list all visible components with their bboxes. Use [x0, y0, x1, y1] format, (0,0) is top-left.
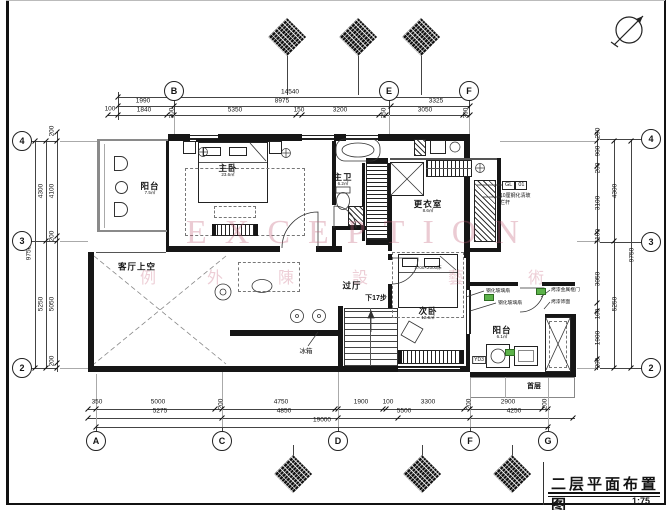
- axis-bubble-E: E: [379, 81, 399, 101]
- annotation: 首层: [527, 381, 541, 391]
- dimension-label: 150: [294, 107, 305, 114]
- axis-bubble-F: F: [460, 431, 480, 451]
- dimension-label: 5250: [38, 297, 45, 311]
- dimension-label: 4300: [612, 184, 619, 198]
- fridge-symbol: [291, 310, 304, 323]
- dimension-label: 3200: [333, 107, 347, 114]
- room-area: 6.1㎡: [492, 335, 511, 340]
- glass-callout-code: GL: [502, 181, 515, 190]
- bed-fold: [440, 256, 456, 270]
- dimension-label: 5500: [397, 408, 411, 415]
- dimension-label: 1840: [137, 107, 151, 114]
- glass-callout-desc: 栏杆: [500, 199, 510, 206]
- dimension-label: 5250: [612, 297, 619, 311]
- room-name: 过厅: [342, 281, 361, 290]
- north-compass: [611, 16, 643, 47]
- dimension-label: 8975: [275, 98, 289, 105]
- axis-bubble-2: 2: [12, 358, 32, 378]
- room-label: 过厅: [342, 281, 361, 290]
- room-label: 次卧12.6㎡: [418, 307, 437, 321]
- dimension-label: 1100: [595, 229, 602, 243]
- dimension-label: 3325: [429, 98, 443, 105]
- door-arc: [392, 258, 418, 284]
- dimension-label: 5350: [228, 107, 242, 114]
- drawing-title: 二层平面布置图: [551, 473, 670, 510]
- dimension-label: 3100: [595, 196, 602, 210]
- dimension-label: 100: [383, 399, 394, 406]
- axis-bubble-3: 3: [12, 231, 32, 251]
- material-callout: 烤漆饰面: [551, 298, 570, 305]
- dimension-label: 5050: [49, 297, 56, 311]
- dimension-label: 4750: [274, 399, 288, 406]
- dimension-label: 200: [595, 358, 602, 369]
- glass-callout-box: GL01: [502, 181, 527, 190]
- dimension-label: 200: [595, 128, 602, 139]
- glass-callout-desc: 10厘钢化清玻: [500, 192, 531, 199]
- room-label: 阳台7.5㎡: [140, 182, 159, 196]
- material-callout: 钢化玻璃扇: [498, 299, 522, 306]
- axis-bubble-F: F: [459, 81, 479, 101]
- dimension-label: 19000: [313, 417, 331, 424]
- room-area: 6.2㎡: [333, 182, 352, 187]
- dimension-label: 300: [169, 108, 176, 119]
- dimension-label: 4300: [38, 184, 45, 198]
- dimension-label: 5000: [151, 399, 165, 406]
- dimension-label: 4250: [507, 408, 521, 415]
- round-table: [215, 284, 231, 300]
- room-area: 7.5㎡: [140, 191, 159, 196]
- axis-bubble-2: 2: [641, 358, 661, 378]
- dimension-label: 350: [92, 399, 103, 406]
- desk-chair: [252, 280, 272, 293]
- dimension-label: 200: [595, 163, 602, 174]
- floor-plan-sheet: GL01 10厘钢化清玻 栏杆 钢化玻璃扇 钢化玻璃扇 烤漆金属框门 烤漆饰面 …: [0, 0, 670, 510]
- corner-chair: [401, 321, 423, 343]
- material-callout: 钢化玻璃扇: [486, 287, 510, 294]
- dimension-label: 3050: [418, 107, 432, 114]
- axis-bubble-4: 4: [12, 131, 32, 151]
- ceiling-fan-symbols: [199, 142, 485, 173]
- dimension-label: 200: [49, 126, 56, 137]
- room-area: 23.6㎡: [218, 173, 237, 178]
- material-callout: 烤漆金属框门: [551, 286, 580, 293]
- room-area: 12.6㎡: [418, 316, 437, 321]
- room-label: 主卫6.2㎡: [333, 173, 352, 187]
- dimension-label: 200: [49, 356, 56, 367]
- dimension-label: 200: [49, 231, 56, 242]
- dimension-label: 100: [105, 106, 116, 113]
- axis-bubble-A: A: [86, 431, 106, 451]
- room-label: 更衣室8.6㎡: [414, 200, 443, 214]
- drawing-scale: 1:75: [632, 496, 650, 506]
- equipment-tag: [505, 349, 515, 356]
- fridge-symbol: [313, 310, 326, 323]
- room-name: 客厅上空: [118, 262, 156, 271]
- annotation: 下17步: [365, 293, 387, 303]
- equipment-tag: [484, 294, 494, 301]
- dimension-label: 1900: [354, 399, 368, 406]
- door-arc: [282, 212, 318, 248]
- dimension-label: 100: [595, 309, 602, 320]
- dimension-label: 14540: [281, 89, 299, 96]
- dimension-label: 200: [466, 399, 473, 410]
- room-label: 阳台6.1㎡: [492, 326, 511, 340]
- dimension-label: 200: [218, 399, 225, 410]
- dimension-label: 900: [595, 146, 602, 157]
- dimension-label: 4850: [277, 408, 291, 415]
- dimension-label: 2900: [501, 399, 515, 406]
- bathtub: [336, 139, 380, 161]
- axis-bubble-B: B: [164, 81, 184, 101]
- dimension-label: 300: [463, 108, 470, 119]
- dimension-label: 3050: [595, 272, 602, 286]
- stair-arrow: [368, 311, 374, 332]
- dimension-label: 5275: [153, 408, 167, 415]
- axis-bubble-3: 3: [641, 232, 661, 252]
- dimension-label: 1900: [595, 331, 602, 345]
- room-area: 8.6㎡: [414, 209, 443, 214]
- dimension-label: 9750: [629, 248, 636, 262]
- washer-drum: [491, 349, 505, 363]
- toilet: [337, 193, 350, 210]
- axis-bubble-D: D: [328, 431, 348, 451]
- axis-bubble-G: G: [538, 431, 558, 451]
- axis-bubble-4: 4: [641, 129, 661, 149]
- dimension-label: 200: [542, 399, 549, 410]
- annotation: 冰箱: [300, 345, 313, 355]
- equipment-tag: [536, 288, 546, 295]
- bathtub-basin: [342, 143, 374, 157]
- axis-bubble-C: C: [212, 431, 232, 451]
- glass-callout-num: 01: [515, 181, 527, 190]
- room-label: 主卧23.6㎡: [218, 164, 237, 178]
- room-label: 客厅上空: [118, 262, 156, 271]
- dimension-label: 250: [381, 108, 388, 119]
- bed-fold: [250, 143, 266, 161]
- annotation: 1700×2000床: [414, 265, 441, 271]
- dimension-label: 4100: [49, 184, 56, 198]
- dimension-label: 3300: [421, 399, 435, 406]
- annotation: YD3: [472, 356, 486, 364]
- dimension-label: 1990: [136, 98, 150, 105]
